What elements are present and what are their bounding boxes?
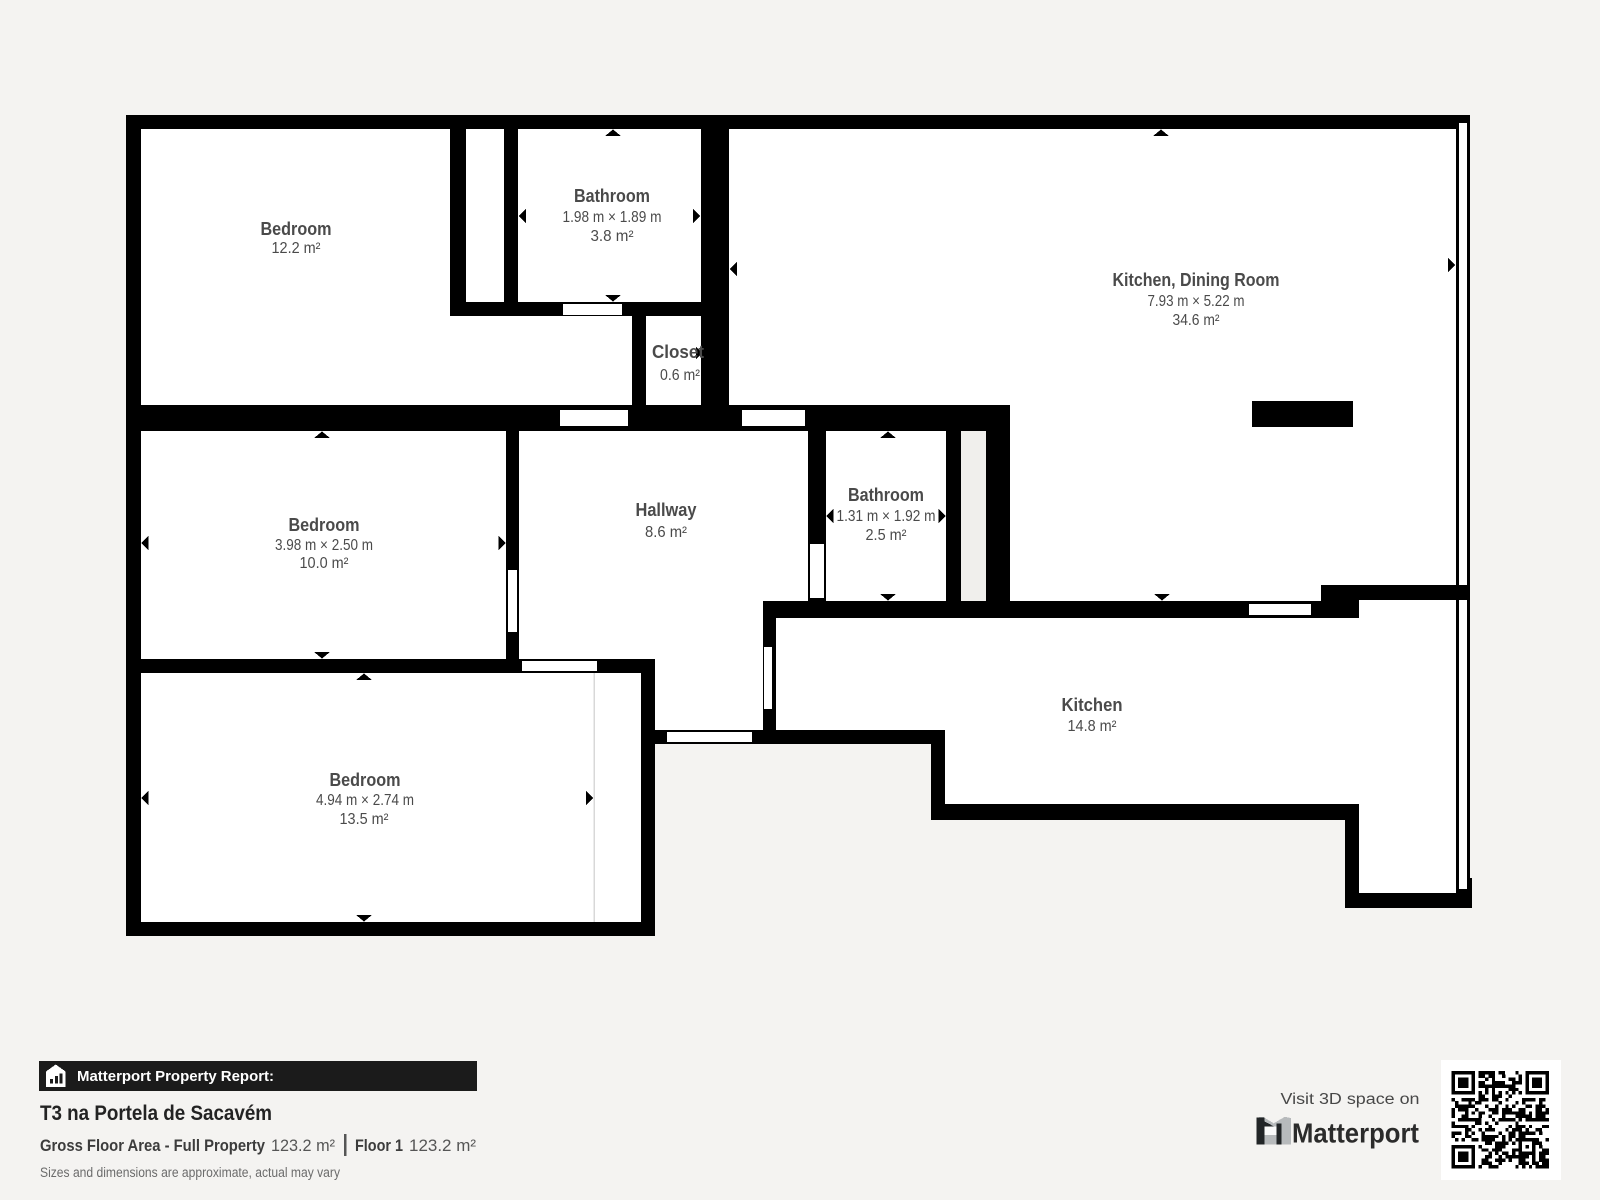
svg-text:0.6 m²: 0.6 m²: [660, 367, 700, 384]
svg-text:Bathroom: Bathroom: [574, 185, 650, 206]
svg-text:Kitchen, Dining Room: Kitchen, Dining Room: [1113, 269, 1280, 290]
svg-text:3.8 m²: 3.8 m²: [591, 228, 634, 245]
svg-text:1.31 m × 1.92 m: 1.31 m × 1.92 m: [837, 508, 936, 525]
svg-text:12.2 m²: 12.2 m²: [272, 240, 321, 257]
svg-text:T3 na Portela de Sacavém: T3 na Portela de Sacavém: [40, 1102, 272, 1125]
svg-text:Bedroom: Bedroom: [261, 218, 332, 239]
svg-text:Visit 3D space on: Visit 3D space on: [1281, 1091, 1420, 1108]
svg-text:Bedroom: Bedroom: [330, 769, 401, 790]
svg-text:13.5 m²: 13.5 m²: [340, 811, 389, 828]
svg-text:Closet: Closet: [652, 341, 704, 362]
svg-text:2.5 m²: 2.5 m²: [866, 527, 907, 544]
svg-text:Hallway: Hallway: [636, 499, 698, 520]
svg-text:Gross Floor Area - Full Proper: Gross Floor Area - Full Property: [40, 1137, 266, 1155]
svg-text:123.2 m²: 123.2 m²: [409, 1137, 477, 1155]
svg-text:1.98 m × 1.89 m: 1.98 m × 1.89 m: [563, 209, 662, 226]
svg-text:7.93 m × 5.22 m: 7.93 m × 5.22 m: [1148, 293, 1245, 310]
svg-text:8.6 m²: 8.6 m²: [645, 524, 687, 541]
svg-text:34.6 m²: 34.6 m²: [1173, 312, 1220, 329]
svg-text:3.98 m × 2.50 m: 3.98 m × 2.50 m: [275, 537, 373, 554]
svg-text:14.8 m²: 14.8 m²: [1068, 718, 1117, 735]
svg-text:Kitchen: Kitchen: [1062, 694, 1123, 715]
svg-text:Matterport: Matterport: [1292, 1118, 1419, 1149]
svg-text:Sizes and dimensions are appro: Sizes and dimensions are approximate, ac…: [40, 1165, 340, 1180]
svg-text:Bedroom: Bedroom: [289, 514, 360, 535]
svg-text:10.0 m²: 10.0 m²: [300, 555, 349, 572]
svg-text:Bathroom: Bathroom: [848, 484, 924, 505]
svg-text:Matterport Property Report:: Matterport Property Report:: [77, 1069, 274, 1085]
svg-text:Floor 1: Floor 1: [355, 1137, 403, 1155]
svg-text:4.94 m × 2.74 m: 4.94 m × 2.74 m: [316, 792, 414, 809]
svg-text:123.2 m²: 123.2 m²: [271, 1137, 335, 1155]
